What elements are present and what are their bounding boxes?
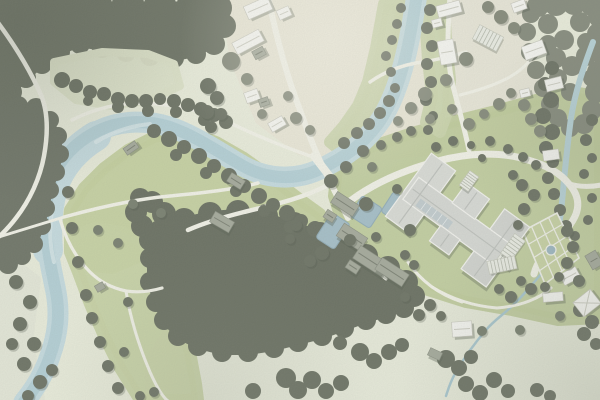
wash-layer [0, 0, 600, 400]
site-plan-map [0, 0, 600, 400]
paper-grain [0, 0, 600, 400]
site-plan-canvas [0, 0, 600, 400]
